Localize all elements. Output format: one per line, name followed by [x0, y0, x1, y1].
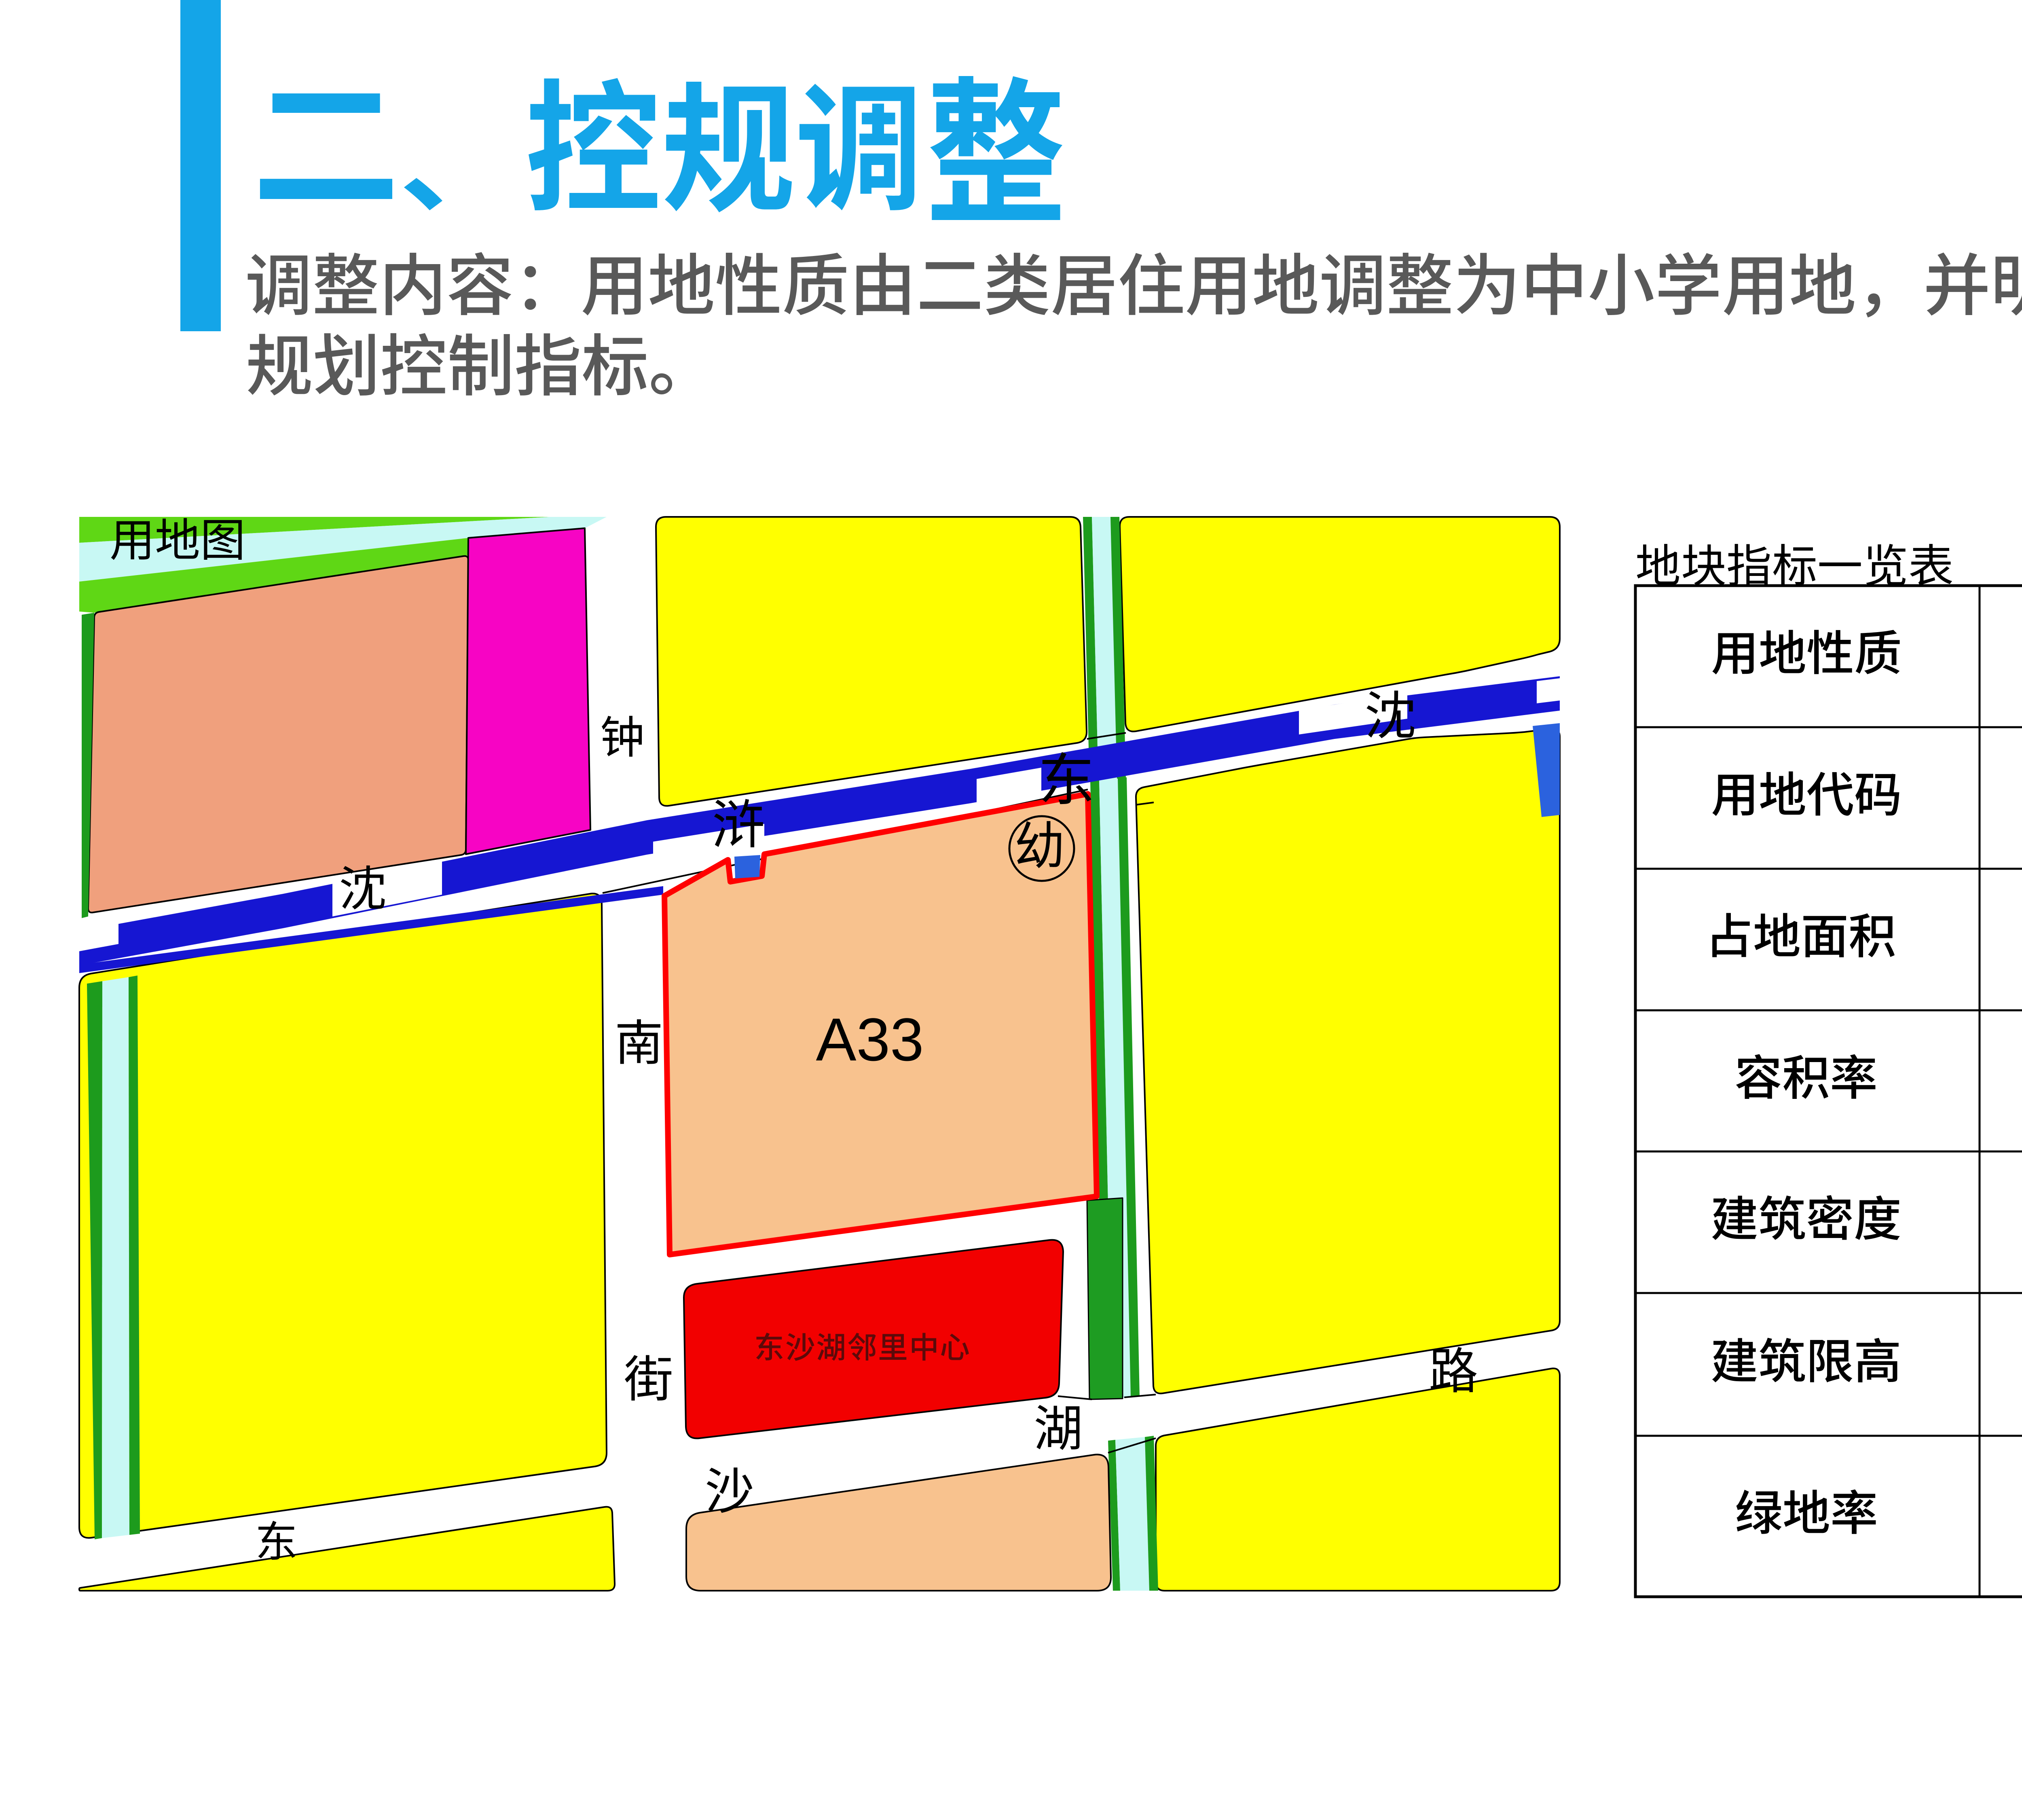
- svg-text:A33: A33: [816, 1005, 924, 1073]
